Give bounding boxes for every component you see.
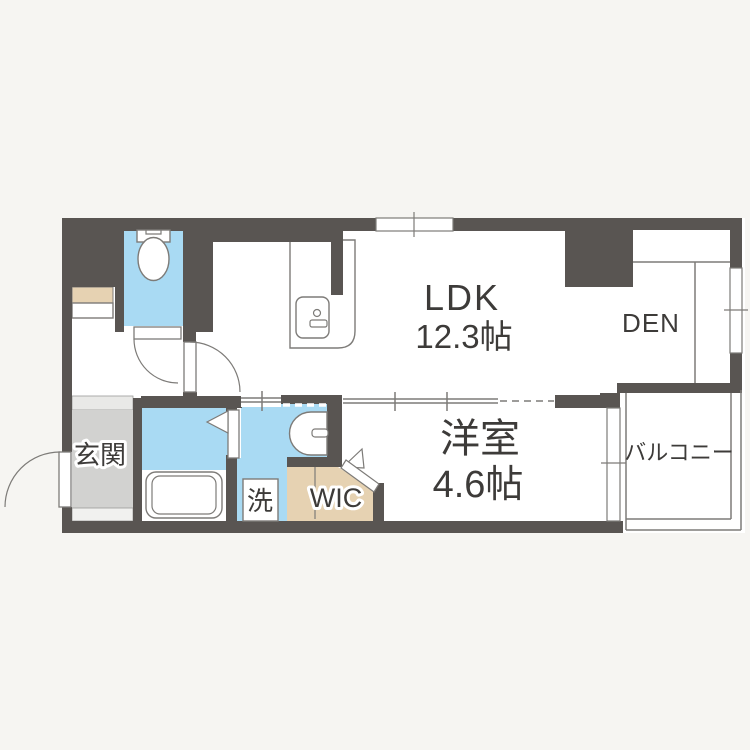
kitchen-sink-icon [296, 297, 329, 338]
toilet-icon [138, 238, 169, 281]
entrance-door-swing-arc [5, 452, 60, 507]
entrance-outer-step [72, 396, 133, 410]
wall-top-mid [453, 218, 565, 231]
wall-bathroom-left [133, 398, 142, 521]
wall-slide-pocket [281, 395, 331, 404]
wall-wic-top [287, 457, 342, 467]
pillar-top-center [565, 218, 633, 287]
kitchen-faucet-icon [314, 310, 321, 317]
entrance-inner-step [72, 508, 133, 521]
kitchen-faucet-base [310, 320, 327, 327]
wall-den-bottom [617, 383, 742, 393]
hall-shelf-cabinet [72, 303, 113, 318]
den-label: DEN [622, 308, 680, 338]
window-western-room-balcony [607, 408, 620, 521]
wall-toilet-left [115, 218, 124, 332]
ldk-size-label: 12.3帖 [415, 318, 512, 355]
entrance-door-leaf [59, 452, 71, 507]
ldk-label: LDK [424, 277, 500, 318]
bathroom-door-leaf [228, 410, 239, 458]
hall-shelf [72, 287, 113, 303]
wall-kitchen-side [331, 233, 343, 295]
ldk-door-leaf [184, 342, 196, 392]
laundry-label: 洗 [247, 486, 273, 516]
wall-right-upper [730, 218, 742, 268]
wash-basin-faucet [312, 429, 328, 437]
wall-kitchen-back [213, 230, 343, 242]
wic-label: WIC [310, 483, 362, 513]
toilet-door-leaf [134, 327, 181, 339]
wall-window-stub [600, 393, 620, 408]
balcony-label: バルコニー [624, 440, 734, 465]
wall-bottom [62, 521, 623, 533]
floor-plan-page: LDK 12.3帖 DEN 洋室 4.6帖 バルコニー 玄関 WIC 洗 [0, 0, 750, 750]
wall-washroom-right [327, 395, 342, 458]
western-room-label: 洋室 [440, 417, 520, 461]
wall-hall-door-stub-top [183, 332, 196, 342]
western-room-size-label: 4.6帖 [433, 464, 524, 506]
wall-toilet-right [183, 218, 213, 332]
bathtub-icon [146, 472, 222, 518]
floor-plan: LDK 12.3帖 DEN 洋室 4.6帖 バルコニー 玄関 WIC 洗 [0, 0, 750, 750]
wall-bathroom-right-bottom [226, 455, 237, 521]
entrance-label: 玄関 [74, 440, 126, 470]
wall-left-upper [62, 218, 72, 452]
wall-top-right [633, 218, 742, 230]
